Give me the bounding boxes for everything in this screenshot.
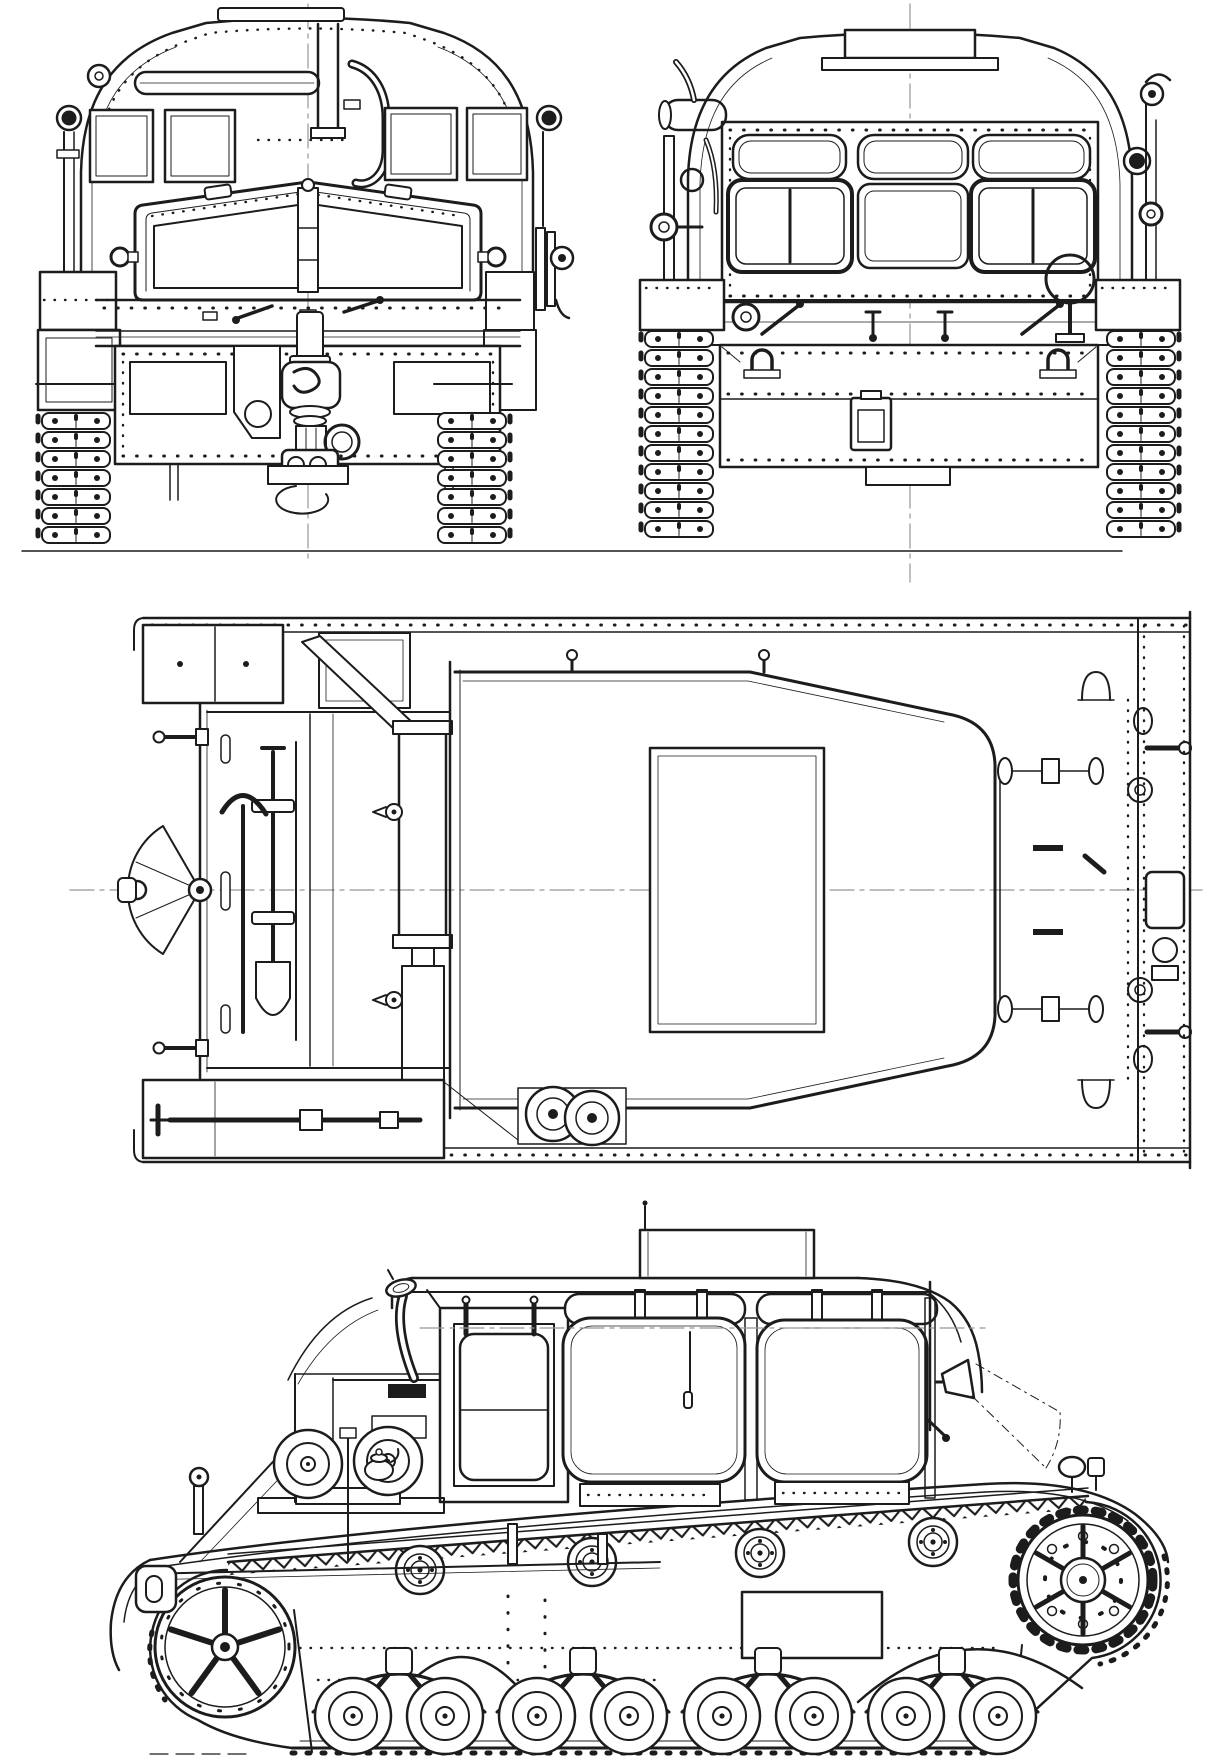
front-door-window (563, 1318, 745, 1482)
front-view (36, 4, 573, 560)
roof-top-box (640, 1230, 814, 1278)
road-wheel (960, 1678, 1036, 1754)
rear-lower-plate (720, 345, 1098, 485)
return-roller (568, 1538, 616, 1586)
plan-toolbox (143, 625, 283, 703)
shovel-blade (256, 962, 290, 1015)
plan-bottom-apron (143, 1080, 626, 1158)
door-post (745, 1318, 757, 1500)
rear-left-track (641, 331, 713, 537)
blueprint-canvas (0, 0, 1206, 1758)
road-wheel (407, 1678, 483, 1754)
plan-pioneer-tools (221, 735, 296, 1040)
front-tow-bracket (136, 1566, 176, 1612)
windshield-panel (467, 108, 527, 180)
wingnut-latch (373, 804, 402, 820)
road-wheel (684, 1678, 760, 1754)
plan-rear-plate (1138, 612, 1190, 1168)
plan-cab-roof (450, 650, 995, 1118)
road-wheel (499, 1678, 575, 1754)
rear-upper-windows (733, 135, 1090, 179)
side-radiator-door (440, 1308, 568, 1502)
return-roller (736, 1529, 784, 1577)
rear-hitch-box (1146, 872, 1184, 928)
rear-view (640, 4, 1180, 582)
return-roller (396, 1546, 444, 1594)
windshield-panel (165, 110, 235, 182)
rear-roof-box (845, 30, 975, 58)
plan-view (70, 612, 1202, 1168)
hood-intake-slot (388, 1384, 426, 1398)
plan-tow-hitch-fan (118, 826, 211, 954)
radiator-mesh-left (154, 205, 298, 288)
road-wheel (315, 1678, 391, 1754)
road-wheel (776, 1678, 852, 1754)
front-left-sponson-boxes (38, 272, 120, 410)
front-radiator (111, 179, 505, 300)
filler-cap (384, 184, 411, 200)
side-drive-sprocket (1013, 1510, 1153, 1650)
roof-vent-pin (567, 650, 577, 672)
deck-latch-row (998, 758, 1103, 784)
side-work-lamp (936, 1360, 1060, 1468)
windshield-panel (385, 108, 457, 180)
rear-lamp-lens (1129, 153, 1145, 169)
plan-spring-coil (402, 966, 444, 1082)
deck-latch-row (998, 996, 1103, 1022)
plan-roof-hatch-panel (650, 748, 824, 1032)
return-roller (909, 1518, 957, 1566)
front-right-headlight-icon (537, 106, 561, 226)
front-left-headlight-icon (57, 106, 81, 288)
side-view (111, 1201, 1168, 1755)
roof-vent-pin (759, 650, 769, 672)
rear-right-track (1107, 331, 1179, 537)
wingnut-latch (373, 992, 402, 1008)
rear-door-window (757, 1320, 927, 1482)
front-roof-hatch (218, 8, 344, 21)
filler-cap (204, 184, 231, 200)
side-exhaust-pipe (384, 1270, 417, 1378)
windshield-panel (90, 110, 153, 182)
road-wheel (591, 1678, 667, 1754)
road-wheel (868, 1678, 944, 1754)
blueprint-sheet (0, 0, 1206, 1758)
radiator-mesh-right (318, 205, 462, 288)
rear-lower-windows (728, 180, 1095, 272)
rear-right-fittings (1140, 74, 1170, 300)
plan-muffler (399, 731, 446, 937)
